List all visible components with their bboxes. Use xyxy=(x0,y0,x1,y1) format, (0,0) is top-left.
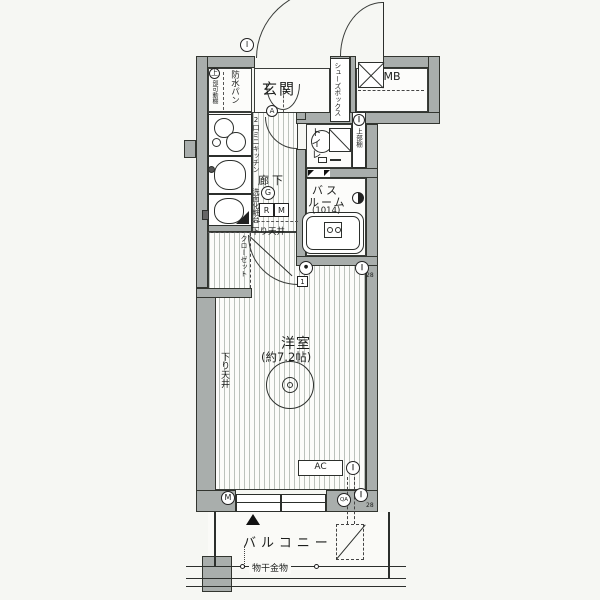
ceiling-light-inner xyxy=(287,382,293,388)
mark-m: M xyxy=(221,491,235,505)
closet-label: クローゼット xyxy=(240,235,247,287)
balcony-right-rail xyxy=(388,512,390,578)
vanity-corner xyxy=(236,211,249,224)
bath-door-stop-left xyxy=(308,170,314,176)
box-r: R xyxy=(259,203,274,217)
mark-bars-top: ‖ xyxy=(355,261,369,275)
sink-faucet xyxy=(208,166,215,173)
mark-a: A xyxy=(266,105,278,117)
mark-i: I xyxy=(240,38,254,52)
corridor-label: 廊下 xyxy=(258,172,286,188)
mb-door-leaf xyxy=(383,2,384,56)
wall-right-main xyxy=(366,124,378,512)
wall-left-lower xyxy=(196,288,216,512)
mark-g: G xyxy=(261,186,275,200)
shoebox-label: シューズボックス xyxy=(333,62,340,120)
closet-top-dash xyxy=(208,232,252,233)
corridor-ceiling-dash xyxy=(252,221,298,222)
wall-left-upper xyxy=(196,56,208,288)
laundry-dash xyxy=(223,72,224,110)
bousui-pan-label: 防水パン xyxy=(230,70,239,112)
toilet-shelf-mark: ‖ xyxy=(353,114,365,126)
mb-dash xyxy=(358,90,424,91)
wall-left-bump xyxy=(184,140,196,158)
genkan-label: 玄関 xyxy=(262,78,296,99)
closet-dash xyxy=(250,233,251,288)
mb-label: MB xyxy=(356,70,428,83)
lowered-ceiling-corridor: 下り天井 xyxy=(251,225,285,237)
bath-control-dial-1 xyxy=(327,227,333,233)
lowered-ceiling-room: 下り天井 xyxy=(219,352,228,410)
laundry-tick-left xyxy=(240,564,245,569)
bath-size: (1014) xyxy=(312,206,340,216)
bath-door-stop-right xyxy=(324,170,330,176)
room-size: (約7.2帖) xyxy=(261,349,311,365)
mark-qa: QA xyxy=(337,493,351,507)
laundry-tick-right xyxy=(314,564,319,569)
stove-burner-2 xyxy=(226,132,246,152)
balcony-line-3 xyxy=(186,586,406,587)
mark-dot-circle: ● xyxy=(299,261,313,275)
laundry-hardware-label: 物干金物 xyxy=(249,561,291,574)
toilet-shelf-note: 上部棚 xyxy=(355,128,362,158)
mark-bars-bottom: ‖ xyxy=(354,488,368,502)
bath-control-dial-2 xyxy=(335,227,341,233)
wall-closet-bottom xyxy=(196,288,252,298)
balcony-left-rail xyxy=(214,512,216,566)
wall-toilet-top xyxy=(296,112,440,124)
balcony-label: バルコニー xyxy=(243,532,333,551)
stove-burner-small xyxy=(212,138,221,147)
entrance-door-arc xyxy=(256,0,330,58)
balcony-window-meet xyxy=(280,495,282,511)
upper-shelf-mark: 上 xyxy=(209,68,220,79)
mark-bars-ac: ‖ xyxy=(346,461,360,475)
bath-door-knob xyxy=(352,192,364,204)
vanity-sidebox xyxy=(202,210,209,220)
entry-triangle xyxy=(246,514,260,525)
box-1: 1 xyxy=(297,276,308,287)
mb-door-arc xyxy=(340,2,383,56)
toilet-label: トイレ xyxy=(309,127,319,167)
balcony-line-1 xyxy=(186,566,406,567)
sink-basin xyxy=(214,160,246,190)
ac-dash-2 xyxy=(354,477,355,524)
balcony-line-2 xyxy=(186,578,406,579)
toilet-rail xyxy=(330,159,341,161)
ac-label: AC xyxy=(298,462,343,472)
wall-toilet-left-a xyxy=(296,112,306,120)
floorplan-canvas: シューズボックス MB 玄関 防水パン 上 部可動棚 2口ミニキッチン 洗面化粧… xyxy=(0,0,600,600)
num-28-top: 28 xyxy=(366,272,374,279)
num-28-bottom: 28 xyxy=(366,502,374,509)
box-m: M xyxy=(274,203,289,217)
upper-shelf-note: 部可動棚 xyxy=(211,80,217,112)
